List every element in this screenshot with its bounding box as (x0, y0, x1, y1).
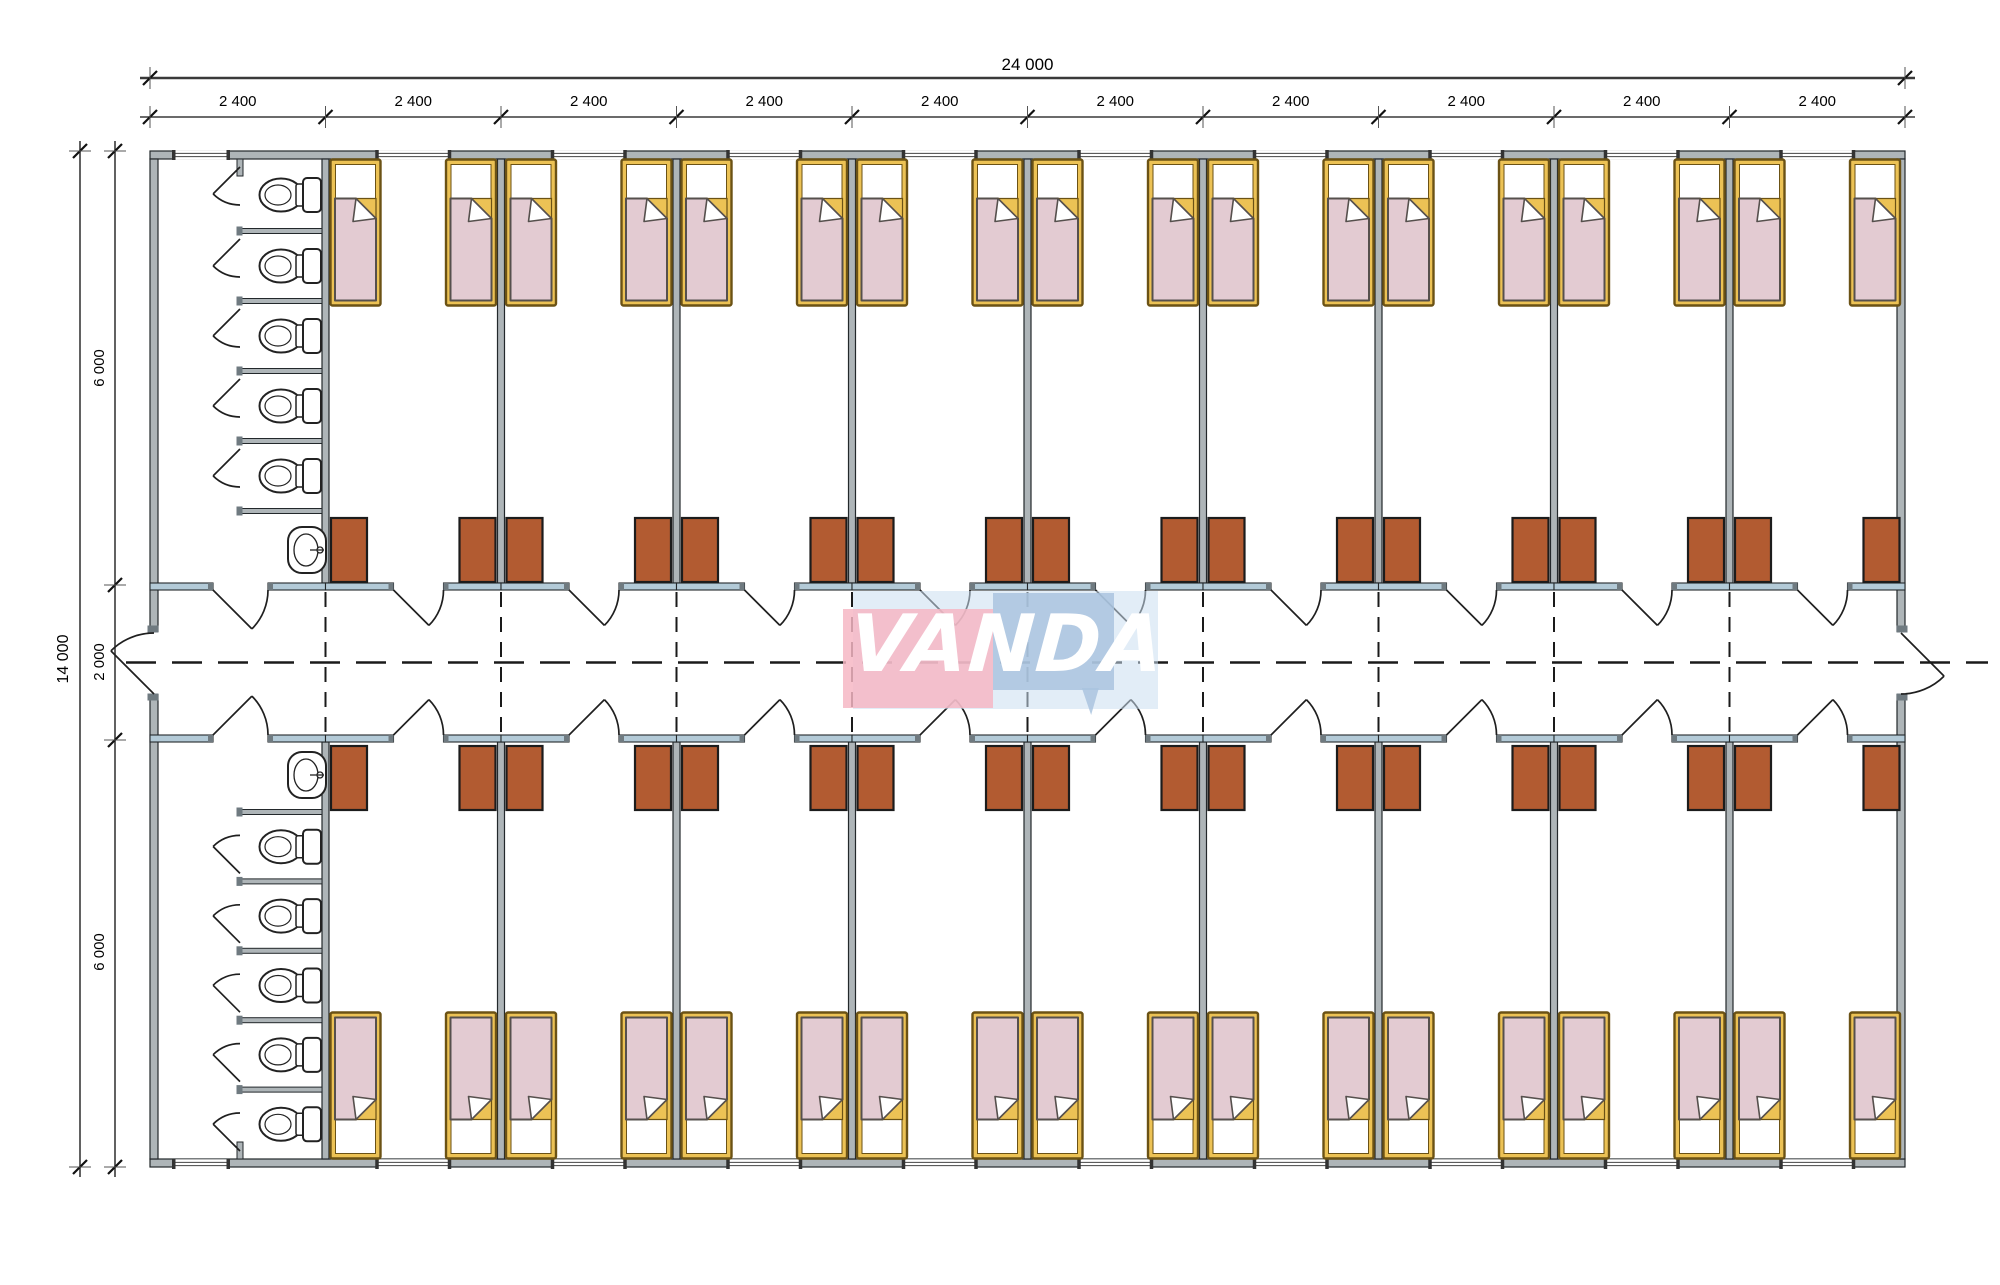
corridor-wall-segment (795, 583, 853, 590)
stall-door-leaf (213, 916, 240, 943)
wardrobe-icon (1560, 746, 1596, 810)
wall-cap (268, 583, 273, 590)
wall-cap (1321, 583, 1326, 590)
stall-door-leaf (213, 167, 240, 194)
toilet-tank (303, 249, 321, 283)
corridor-wall-segment (1848, 735, 1906, 742)
door-swing-icon (780, 590, 795, 625)
door-swing-icon (604, 590, 619, 625)
toilet-bowl-inner (265, 837, 291, 857)
corridor-wall-segment (852, 735, 920, 742)
wall-cap (1146, 735, 1151, 742)
wall-cap (237, 808, 243, 817)
wall-cap (1321, 735, 1326, 742)
stall-divider (240, 1018, 322, 1023)
wardrobe-icon (331, 518, 367, 582)
window-icon (1431, 1159, 1501, 1168)
window-icon (378, 1159, 448, 1168)
corridor-wall-segment (150, 735, 213, 742)
room-door-leaf (1447, 590, 1482, 625)
door-swing-icon (1306, 700, 1321, 735)
corridor-wall-segment (677, 583, 745, 590)
corridor-wall-segment (1379, 735, 1447, 742)
bay-wall-bottom (498, 742, 505, 1159)
window-jamb (448, 1159, 452, 1169)
wall-cap (237, 507, 243, 516)
window-jamb (799, 1159, 803, 1169)
window-icon (905, 1159, 975, 1168)
wardrobe-icon (986, 518, 1022, 582)
door-swing-icon (429, 590, 444, 625)
wall-cap (564, 735, 569, 742)
toilet-bowl-inner (265, 976, 291, 996)
bay-wall-bottom (1551, 742, 1558, 1159)
corridor-wall-segment (1672, 735, 1730, 742)
window-jamb (551, 1159, 555, 1169)
door-swing-icon (1833, 590, 1848, 625)
wall-cap (1091, 735, 1096, 742)
wall-cap (389, 583, 394, 590)
wardrobe-icon (507, 746, 543, 810)
wall-cap (1442, 735, 1447, 742)
room-door-leaf (1798, 590, 1833, 625)
wardrobe-icon (682, 518, 718, 582)
door-swing-icon (955, 700, 970, 735)
wall-cap (237, 1085, 243, 1094)
wall-cap (237, 367, 243, 376)
wall-cap (237, 297, 243, 306)
wall-cap (1617, 735, 1622, 742)
wardrobe-icon (1337, 518, 1373, 582)
stall-divider (240, 1087, 322, 1092)
stall-door-leaf (213, 309, 240, 336)
wardrobe-icon (682, 746, 718, 810)
wardrobe-icon (1735, 746, 1771, 810)
corridor-wall-segment (1321, 583, 1379, 590)
window-jamb (1852, 1159, 1856, 1169)
window-icon (175, 1159, 227, 1168)
window-jamb (623, 1159, 627, 1169)
dim-label-bay-9: 2 400 (1623, 93, 1661, 110)
door-swing-icon (213, 1113, 240, 1124)
corridor-wall-segment (1554, 735, 1622, 742)
wardrobe-icon (460, 746, 496, 810)
window-icon (1080, 150, 1150, 159)
dim-label-bay-3: 2 400 (570, 93, 608, 110)
dim-label-corridor-width: 2 000 (91, 643, 108, 681)
wall-cap (619, 735, 624, 742)
wardrobe-icon (986, 746, 1022, 810)
wardrobe-icon (1209, 518, 1245, 582)
bay-wall-bottom (1200, 742, 1207, 1159)
room-door-leaf (1271, 700, 1306, 735)
window-icon (554, 150, 624, 159)
door-swing-icon (780, 700, 795, 735)
wall-cap (148, 694, 159, 701)
toilet-tank (303, 178, 321, 212)
toilet-tank (303, 459, 321, 493)
window-icon (175, 150, 227, 159)
window-jamb (1077, 1159, 1081, 1169)
window-jamb (1501, 1159, 1505, 1169)
wardrobe-icon (1033, 746, 1069, 810)
door-swing-icon (252, 590, 268, 629)
corridor-wall-segment (1028, 735, 1096, 742)
corridor-wall-segment (970, 583, 1028, 590)
wall-cap (444, 735, 449, 742)
bay-wall-top (1200, 159, 1207, 583)
corridor-wall-segment (501, 583, 569, 590)
wall-cap (970, 735, 975, 742)
stall-door-leaf (213, 985, 240, 1012)
window-icon (378, 150, 448, 159)
window-icon (905, 150, 975, 159)
wardrobe-icon (1688, 518, 1724, 582)
wardrobe-icon (811, 746, 847, 810)
room-door-leaf (920, 700, 955, 735)
door-swing-icon (213, 974, 240, 985)
dim-label-bay-10: 2 400 (1798, 93, 1836, 110)
stall-door-leaf (213, 449, 240, 476)
bay-wall-top (1726, 159, 1733, 583)
room-door-leaf (1096, 590, 1131, 625)
room-door-leaf (394, 700, 429, 735)
wardrobe-icon (1864, 746, 1900, 810)
door-swing-icon (213, 835, 240, 846)
bay-wall-bottom (1024, 742, 1031, 1159)
door-swing-icon (213, 1044, 240, 1055)
bay-wall-bottom (673, 742, 680, 1159)
bay-wall-bottom (1375, 742, 1382, 1159)
wall-cap (1848, 735, 1853, 742)
wall-cap (1497, 583, 1502, 590)
wall-cap (740, 583, 745, 590)
door-swing-icon (213, 266, 240, 277)
floor-plan-drawing: 24 0002 4002 4002 4002 4002 4002 4002 40… (0, 0, 2000, 1285)
room-door-leaf (745, 700, 780, 735)
corridor-wall-segment (444, 583, 502, 590)
wardrobe-icon (1162, 518, 1198, 582)
door-swing-icon (252, 696, 268, 735)
wardrobe-icon (858, 746, 894, 810)
window-jamb (1428, 1159, 1432, 1169)
window-icon (1782, 150, 1852, 159)
wardrobe-icon (1688, 746, 1724, 810)
wall-cap (1266, 735, 1271, 742)
window-icon (1607, 150, 1677, 159)
corridor-wall-segment (501, 735, 569, 742)
floor-plan-page: 24 0002 4002 4002 4002 4002 4002 4002 40… (0, 0, 2000, 1285)
wall-cap (1793, 583, 1798, 590)
bay-wall-top (1375, 159, 1382, 583)
toilet-bowl-inner (265, 1114, 291, 1134)
room-door-leaf (745, 590, 780, 625)
corridor-wall-segment (1730, 583, 1798, 590)
door-swing-icon (1833, 700, 1848, 735)
room-door-leaf (569, 700, 604, 735)
door-swing-icon (111, 633, 154, 651)
corridor-wall-segment (1379, 583, 1447, 590)
corridor-wall-segment (852, 583, 920, 590)
corridor-wall-segment (1203, 583, 1271, 590)
bay-wall-top (849, 159, 856, 583)
corridor-wall-segment (326, 735, 394, 742)
entrance-door-leaf-right (1901, 633, 1944, 676)
corridor-wall-segment (1146, 735, 1204, 742)
bay-wall-top (322, 159, 329, 583)
corridor-wall-segment (1730, 735, 1798, 742)
wardrobe-icon (1384, 518, 1420, 582)
wardrobe-icon (1864, 518, 1900, 582)
bay-wall-top (1551, 159, 1558, 583)
window-icon (729, 1159, 799, 1168)
wardrobe-icon (1033, 518, 1069, 582)
wardrobe-icon (1513, 518, 1549, 582)
stall-door-leaf (213, 1124, 240, 1151)
wall-cap (1497, 735, 1502, 742)
window-icon (1256, 150, 1326, 159)
room-door-leaf (1271, 590, 1306, 625)
wall-cap (208, 735, 213, 742)
wall-cap (237, 877, 243, 886)
window-jamb (172, 1159, 176, 1169)
wall-cap (208, 583, 213, 590)
door-swing-icon (1657, 590, 1672, 625)
dim-label-bay-6: 2 400 (1096, 93, 1134, 110)
window-jamb (1150, 1159, 1154, 1169)
door-swing-icon (1482, 590, 1497, 625)
window-jamb (1779, 1159, 1783, 1169)
window-jamb (172, 150, 176, 160)
stall-divider (240, 439, 322, 444)
room-door-leaf (1798, 700, 1833, 735)
entrance-door-leaf-left (111, 651, 154, 694)
corridor-wall-segment (1672, 583, 1730, 590)
toilet-bowl-inner (265, 906, 291, 926)
window-icon (1782, 1159, 1852, 1168)
dim-label-top-depth: 6 000 (91, 349, 108, 387)
window-jamb (1325, 1159, 1329, 1169)
wall-cap (237, 946, 243, 955)
window-jamb (375, 1159, 379, 1169)
window-icon (729, 150, 799, 159)
window-jamb (1676, 1159, 1680, 1169)
wall-cap (268, 735, 273, 742)
window-icon (1256, 1159, 1326, 1168)
dim-label-bay-2: 2 400 (394, 93, 432, 110)
stall-door-leaf (213, 847, 240, 874)
window-icon (1607, 1159, 1677, 1168)
corridor-wall-segment (619, 735, 677, 742)
window-icon (1080, 1159, 1150, 1168)
toilet-tank (303, 1038, 321, 1072)
wall-cap (740, 735, 745, 742)
wardrobe-icon (1209, 746, 1245, 810)
door-swing-icon (213, 406, 240, 417)
room-door-leaf (1096, 700, 1131, 735)
corridor-wall-segment (444, 735, 502, 742)
bay-wall-bottom (849, 742, 856, 1159)
dim-label-overall-width: 24 000 (1002, 55, 1054, 74)
wall-cap (619, 583, 624, 590)
room-door-leaf (920, 590, 955, 625)
corridor-wall-segment (1321, 735, 1379, 742)
wall-cap (1266, 583, 1271, 590)
corridor-wall-segment (326, 583, 394, 590)
dim-label-bay-7: 2 400 (1272, 93, 1310, 110)
window-jamb (1253, 1159, 1257, 1169)
stall-divider (240, 948, 322, 953)
window-jamb (902, 1159, 906, 1169)
bay-wall-top (498, 159, 505, 583)
door-swing-icon (1657, 700, 1672, 735)
door-swing-icon (213, 194, 240, 205)
stall-divider (240, 879, 322, 884)
toilet-bowl-inner (265, 466, 291, 486)
toilet-tank (303, 319, 321, 353)
bay-wall-top (673, 159, 680, 583)
room-door-leaf (1622, 590, 1657, 625)
window-icon (1431, 150, 1501, 159)
toilet-tank (303, 830, 321, 864)
corridor-wall-segment (795, 735, 853, 742)
toilet-tank (303, 389, 321, 423)
toilet-tank (303, 899, 321, 933)
toilet-tank (303, 1107, 321, 1141)
wall-cap (1672, 735, 1677, 742)
wall-cap (237, 437, 243, 446)
corridor-wall-segment (1203, 735, 1271, 742)
door-swing-icon (1131, 590, 1146, 625)
wall-cap (1848, 583, 1853, 590)
door-swing-icon (1306, 590, 1321, 625)
wardrobe-icon (1384, 746, 1420, 810)
stall-divider (240, 369, 322, 374)
wall-cap (1146, 583, 1151, 590)
wardrobe-icon (811, 518, 847, 582)
wall-cap (970, 583, 975, 590)
stall-divider (240, 229, 322, 234)
wardrobe-icon (635, 746, 671, 810)
door-swing-icon (213, 905, 240, 916)
corridor-wall-segment (619, 583, 677, 590)
room-door-leaf (394, 590, 429, 625)
room-door-leaf (1447, 700, 1482, 735)
bay-wall-bottom (1726, 742, 1733, 1159)
wall-cap (1672, 583, 1677, 590)
stall-divider (240, 299, 322, 304)
wall-cap (1617, 583, 1622, 590)
window-jamb (1604, 1159, 1608, 1169)
stall-door-leaf (213, 1055, 240, 1082)
toilet-tank (303, 969, 321, 1003)
toilet-bowl-inner (265, 1045, 291, 1065)
wardrobe-icon (331, 746, 367, 810)
dim-label-bottom-depth: 6 000 (91, 933, 108, 971)
door-swing-icon (213, 476, 240, 487)
dim-label-overall-height: 14 000 (55, 634, 72, 683)
window-jamb (974, 1159, 978, 1169)
dim-label-bay-4: 2 400 (745, 93, 783, 110)
corridor-wall-segment (677, 735, 745, 742)
door-swing-icon (429, 700, 444, 735)
door-swing-icon (1131, 700, 1146, 735)
door-swing-icon (955, 590, 970, 625)
wall-cap (564, 583, 569, 590)
wall-cap (795, 583, 800, 590)
wardrobe-icon (1513, 746, 1549, 810)
stall-divider (240, 509, 322, 514)
corridor-wall-segment (1497, 735, 1555, 742)
dim-label-bay-1: 2 400 (219, 93, 257, 110)
wall-cap (915, 583, 920, 590)
wall-cap (444, 583, 449, 590)
corridor-wall-segment (150, 583, 213, 590)
toilet-bowl-inner (265, 256, 291, 276)
dim-label-bay-8: 2 400 (1447, 93, 1485, 110)
window-jamb (227, 150, 231, 160)
wall-cap (1442, 583, 1447, 590)
wall-cap (237, 227, 243, 236)
dim-label-bay-5: 2 400 (921, 93, 959, 110)
bay-wall-top (1024, 159, 1031, 583)
wall-cap (148, 626, 159, 633)
toilet-bowl-inner (265, 185, 291, 205)
toilet-room-door-leaf (213, 590, 252, 629)
corridor-wall-segment (1028, 583, 1096, 590)
door-swing-icon (1901, 676, 1944, 694)
door-swing-icon (604, 700, 619, 735)
wall-cap (237, 1016, 243, 1025)
toilet-room-door-leaf (213, 696, 252, 735)
wall-cap (1897, 626, 1908, 633)
corridor-wall-segment (1554, 583, 1622, 590)
wardrobe-icon (460, 518, 496, 582)
door-swing-icon (213, 336, 240, 347)
wardrobe-icon (635, 518, 671, 582)
corridor-wall-segment (1497, 583, 1555, 590)
corridor-wall-segment (268, 735, 326, 742)
wardrobe-icon (507, 518, 543, 582)
wardrobe-icon (1560, 518, 1596, 582)
stall-door-leaf (213, 239, 240, 266)
wardrobe-icon (858, 518, 894, 582)
room-door-leaf (569, 590, 604, 625)
door-swing-icon (1482, 700, 1497, 735)
stall-divider (240, 810, 322, 815)
corridor-wall-segment (268, 583, 326, 590)
room-door-leaf (1622, 700, 1657, 735)
corridor-wall-segment (1146, 583, 1204, 590)
wall-cap (795, 735, 800, 742)
toilet-bowl-inner (265, 396, 291, 416)
wall-cap (1091, 583, 1096, 590)
wall-cap (389, 735, 394, 742)
bay-wall-bottom (322, 742, 329, 1159)
corridor-wall-segment (1848, 583, 1906, 590)
wardrobe-icon (1735, 518, 1771, 582)
wardrobe-icon (1162, 746, 1198, 810)
wall-cap (915, 735, 920, 742)
corridor-wall-segment (970, 735, 1028, 742)
stall-door-leaf (213, 379, 240, 406)
window-jamb (726, 1159, 730, 1169)
wardrobe-icon (1337, 746, 1373, 810)
wall-cap (1793, 735, 1798, 742)
window-icon (554, 1159, 624, 1168)
window-jamb (227, 1159, 231, 1169)
toilet-bowl-inner (265, 326, 291, 346)
